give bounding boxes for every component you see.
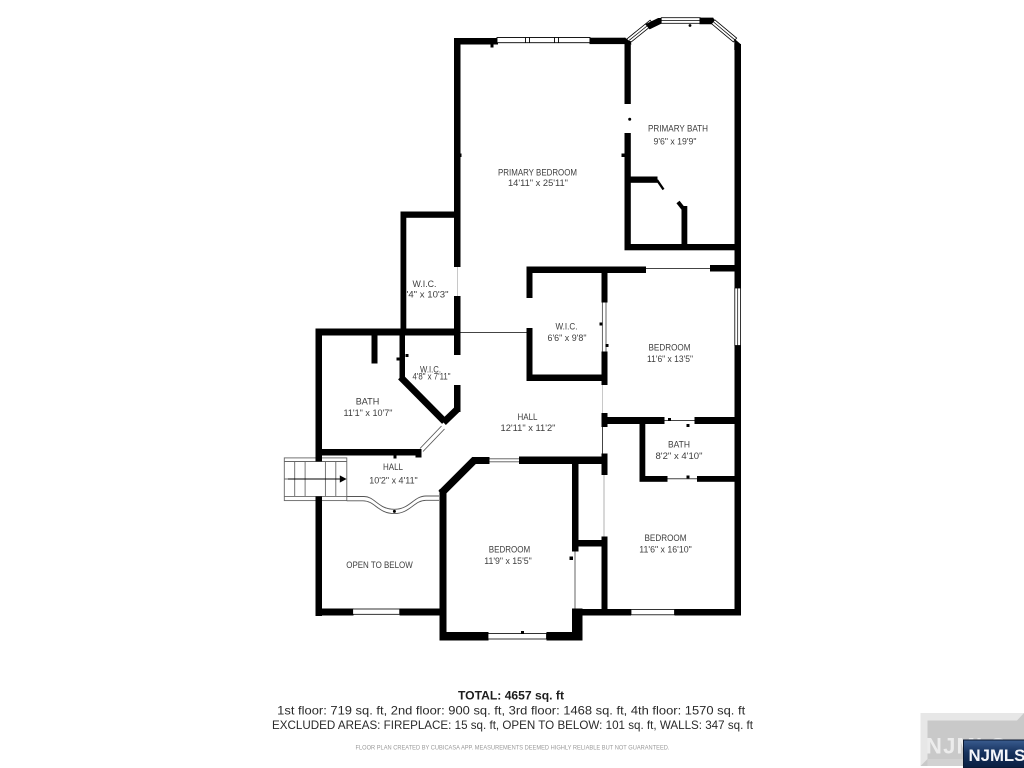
- svg-text:BATH: BATH: [356, 397, 380, 407]
- svg-text:11'6" x 13'5": 11'6" x 13'5": [647, 354, 693, 364]
- svg-text:4'8" x 7'11": 4'8" x 7'11": [413, 372, 451, 382]
- svg-text:1st floor: 719 sq. ft, 2nd flo: 1st floor: 719 sq. ft, 2nd floor: 900 sq…: [277, 704, 746, 717]
- svg-text:BATH: BATH: [668, 440, 690, 450]
- svg-text:14'11" x 25'11": 14'11" x 25'11": [508, 178, 568, 188]
- svg-text:PRIMARY BATH: PRIMARY BATH: [648, 124, 708, 134]
- svg-text:W.I.C.: W.I.C.: [413, 279, 437, 289]
- svg-text:10'2" x 4'11": 10'2" x 4'11": [369, 476, 418, 486]
- svg-text:HALL: HALL: [518, 412, 538, 422]
- svg-text:11'1" x 10'7": 11'1" x 10'7": [344, 408, 393, 418]
- svg-text:'4" x 10'3": '4" x 10'3": [407, 290, 449, 300]
- svg-text:FLOOR PLAN CREATED BY CUBICASA: FLOOR PLAN CREATED BY CUBICASA APP. MEAS…: [356, 744, 670, 751]
- svg-text:11'9" x 15'5": 11'9" x 15'5": [484, 556, 532, 566]
- svg-text:NJMLS: NJMLS: [969, 746, 1024, 765]
- svg-text:PRIMARY BEDROOM: PRIMARY BEDROOM: [498, 167, 577, 177]
- svg-text:W.I.C.: W.I.C.: [556, 322, 578, 332]
- svg-text:8'2" x 4'10": 8'2" x 4'10": [656, 451, 703, 461]
- svg-text:12'11" x 11'2": 12'11" x 11'2": [501, 423, 556, 433]
- svg-text:9'6" x 19'9": 9'6" x 19'9": [654, 137, 697, 147]
- svg-text:BEDROOM: BEDROOM: [489, 545, 531, 555]
- svg-text:BEDROOM: BEDROOM: [649, 343, 691, 353]
- svg-text:EXCLUDED AREAS: FIREPLACE: 15: EXCLUDED AREAS: FIREPLACE: 15 sq. ft, OP…: [272, 719, 754, 732]
- svg-text:6'6" x 9'8": 6'6" x 9'8": [548, 333, 587, 343]
- svg-text:TOTAL: 4657 sq. ft: TOTAL: 4657 sq. ft: [458, 689, 564, 703]
- svg-text:11'6" x 16'10": 11'6" x 16'10": [639, 545, 692, 555]
- svg-text:HALL: HALL: [383, 462, 403, 472]
- svg-text:BEDROOM: BEDROOM: [645, 533, 687, 543]
- svg-text:OPEN TO BELOW: OPEN TO BELOW: [346, 560, 413, 570]
